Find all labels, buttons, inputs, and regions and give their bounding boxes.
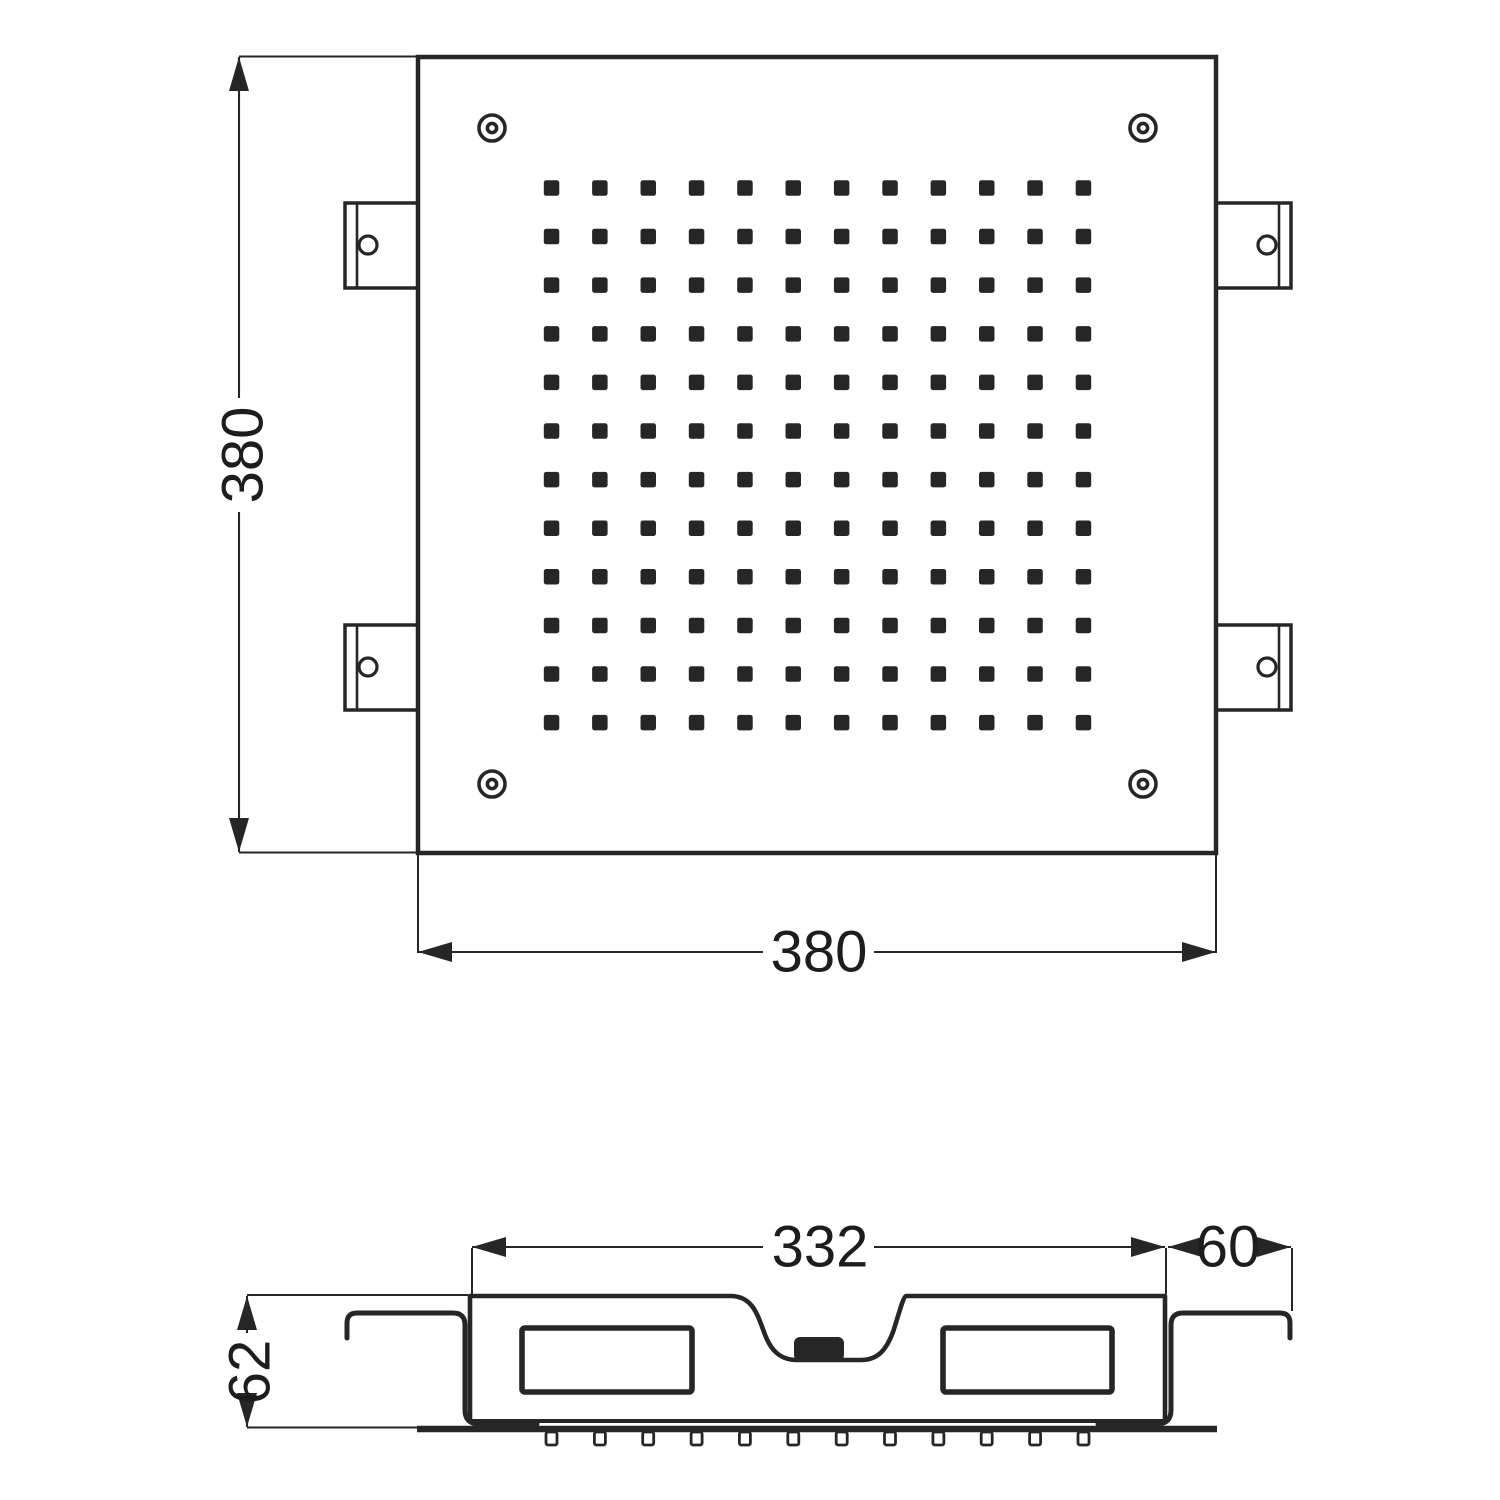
arrow-right-icon (1182, 942, 1216, 962)
nozzle-hole (931, 521, 947, 537)
side-nozzle-row (546, 1432, 1089, 1445)
nozzle-hole (544, 229, 560, 245)
nozzle-hole (544, 277, 560, 293)
nozzle-hole (689, 229, 705, 245)
nozzle-hole (1027, 277, 1043, 293)
mounting-tab-left-bottom (345, 625, 418, 710)
nozzle-hole (1027, 666, 1043, 682)
nozzle-hole (737, 666, 753, 682)
nozzle-hole (592, 277, 608, 293)
nozzle-hole (592, 521, 608, 537)
side-nozzle-tip (1030, 1432, 1041, 1445)
dim-label-width-380: 380 (771, 920, 868, 985)
corner-screw-bottom-right (1130, 771, 1156, 797)
nozzle-hole (834, 375, 850, 391)
nozzle-hole (882, 472, 898, 488)
nozzle-hole (834, 569, 850, 585)
nozzle-hole (882, 569, 898, 585)
nozzle-hole (641, 326, 657, 342)
nozzle-hole (641, 423, 657, 439)
nozzle-hole (544, 666, 560, 682)
nozzle-hole (689, 666, 705, 682)
nozzle-hole (979, 229, 995, 245)
side-nozzle-tip (1078, 1432, 1089, 1445)
nozzle-hole (641, 375, 657, 391)
nozzle-hole (641, 521, 657, 537)
nozzle-hole (737, 521, 753, 537)
technical-drawing-page: 380 380 (0, 0, 1500, 1500)
nozzle-hole (544, 472, 560, 488)
side-nozzle-tip (739, 1432, 750, 1445)
nozzle-hole (737, 229, 753, 245)
nozzle-hole (882, 277, 898, 293)
nozzle-hole (1076, 666, 1092, 682)
nozzle-hole (737, 180, 753, 196)
nozzle-hole (1027, 618, 1043, 634)
nozzle-hole (641, 666, 657, 682)
nozzle-hole (834, 229, 850, 245)
nozzle-hole (1027, 326, 1043, 342)
nozzle-hole (979, 326, 995, 342)
nozzle-hole (882, 326, 898, 342)
nozzle-hole (592, 180, 608, 196)
nozzle-hole (689, 277, 705, 293)
arrow-down-icon (229, 818, 249, 852)
dim-label-body-332: 332 (772, 1215, 869, 1280)
nozzle-hole (931, 569, 947, 585)
nozzle-hole (786, 326, 802, 342)
nozzle-hole (689, 375, 705, 391)
top-view (345, 57, 1291, 853)
side-nozzle-tip (885, 1432, 896, 1445)
shower-head-technical-drawing: 380 380 (0, 0, 1500, 1500)
nozzle-hole (979, 375, 995, 391)
corner-screw-top-right (1130, 115, 1156, 141)
nozzle-hole (592, 375, 608, 391)
dimension-body-332: 332 (472, 1215, 1166, 1295)
nozzle-hole (737, 715, 753, 731)
nozzle-hole (786, 423, 802, 439)
nozzle-hole (592, 472, 608, 488)
nozzle-hole (737, 569, 753, 585)
nozzle-hole (544, 375, 560, 391)
nozzle-hole (1027, 375, 1043, 391)
nozzle-hole (641, 229, 657, 245)
nozzle-hole (786, 618, 802, 634)
nozzle-hole (641, 180, 657, 196)
side-nozzle-tip (643, 1432, 654, 1445)
nozzle-hole (544, 423, 560, 439)
nozzle-hole (931, 472, 947, 488)
nozzle-hole (641, 618, 657, 634)
nozzle-hole (641, 277, 657, 293)
nozzle-hole (979, 569, 995, 585)
side-nozzle-tip (933, 1432, 944, 1445)
water-inlet-connector (795, 1338, 843, 1360)
nozzle-hole (689, 521, 705, 537)
nozzle-hole (689, 423, 705, 439)
nozzle-hole (1076, 229, 1092, 245)
arrow-right-icon (1257, 1237, 1291, 1257)
nozzle-hole (882, 180, 898, 196)
dim-label-tab-60: 60 (1196, 1215, 1261, 1280)
nozzle-hole (737, 472, 753, 488)
corner-screw-bottom-left (479, 771, 505, 797)
nozzle-hole (641, 715, 657, 731)
side-nozzle-tip (788, 1432, 799, 1445)
nozzle-hole (1027, 715, 1043, 731)
dim-label-height-380: 380 (211, 407, 276, 504)
nozzle-hole (979, 521, 995, 537)
nozzle-hole (544, 715, 560, 731)
arrow-right-icon (1131, 1237, 1165, 1257)
side-nozzle-tip (981, 1432, 992, 1445)
nozzle-hole (931, 423, 947, 439)
nozzle-hole (786, 277, 802, 293)
nozzle-hole (1076, 569, 1092, 585)
nozzle-hole (786, 715, 802, 731)
nozzle-hole (979, 277, 995, 293)
nozzle-hole (1076, 277, 1092, 293)
nozzle-hole (1027, 180, 1043, 196)
nozzle-hole (544, 326, 560, 342)
nozzle-hole (931, 375, 947, 391)
nozzle-hole (834, 277, 850, 293)
nozzle-hole (544, 521, 560, 537)
nozzle-hole (737, 618, 753, 634)
dimension-width-380: 380 (418, 853, 1216, 985)
nozzle-hole (931, 229, 947, 245)
nozzle-hole (931, 666, 947, 682)
nozzle-hole (1076, 521, 1092, 537)
nozzle-hole (786, 472, 802, 488)
nozzle-hole (834, 180, 850, 196)
nozzle-hole (1076, 375, 1092, 391)
nozzle-hole (931, 326, 947, 342)
side-nozzle-tip (836, 1432, 847, 1445)
nozzle-hole (1076, 180, 1092, 196)
nozzle-hole (689, 715, 705, 731)
nozzle-hole (592, 666, 608, 682)
nozzle-hole (834, 326, 850, 342)
nozzle-hole (882, 423, 898, 439)
arrow-up-icon (229, 57, 249, 91)
nozzle-hole (834, 666, 850, 682)
nozzle-hole (689, 326, 705, 342)
nozzle-hole (592, 326, 608, 342)
mounting-tab-right-top (1216, 203, 1291, 288)
nozzle-hole (1076, 715, 1092, 731)
nozzle-hole (1076, 618, 1092, 634)
nozzle-hole (882, 715, 898, 731)
tab-hole (1258, 658, 1276, 676)
nozzle-hole (1027, 229, 1043, 245)
nozzle-hole (979, 423, 995, 439)
nozzle-hole (544, 569, 560, 585)
nozzle-hole (592, 715, 608, 731)
nozzle-hole (882, 229, 898, 245)
nozzle-hole (1027, 521, 1043, 537)
nozzle-hole (1076, 472, 1092, 488)
nozzle-hole (979, 666, 995, 682)
nozzle-hole (931, 715, 947, 731)
nozzle-hole (931, 277, 947, 293)
nozzle-hole (979, 180, 995, 196)
nozzle-hole (592, 618, 608, 634)
internal-slot-left (522, 1328, 692, 1392)
nozzle-hole (737, 423, 753, 439)
nozzle-hole (1076, 423, 1092, 439)
nozzle-hole (592, 569, 608, 585)
nozzle-hole (544, 180, 560, 196)
nozzle-hole (931, 618, 947, 634)
nozzle-hole (834, 423, 850, 439)
face-plate (418, 57, 1216, 853)
mounting-tab-right-bottom (1216, 625, 1291, 710)
internal-slot-right (943, 1328, 1112, 1392)
nozzle-hole (882, 666, 898, 682)
nozzle-hole (786, 569, 802, 585)
nozzle-hole (641, 569, 657, 585)
dim-label-height-62: 62 (218, 1340, 283, 1405)
arrow-up-icon (237, 1296, 257, 1330)
nozzle-hole (689, 472, 705, 488)
nozzle-hole (592, 229, 608, 245)
corner-screw-top-left (479, 115, 505, 141)
nozzle-hole (689, 618, 705, 634)
nozzle-hole (979, 715, 995, 731)
nozzle-hole (882, 375, 898, 391)
side-view (347, 1296, 1290, 1445)
nozzle-hole (979, 618, 995, 634)
dimension-height-380: 380 (211, 57, 419, 853)
nozzle-hole (834, 521, 850, 537)
nozzle-hole (1027, 472, 1043, 488)
nozzle-hole (737, 375, 753, 391)
nozzle-hole (786, 180, 802, 196)
nozzle-hole (786, 375, 802, 391)
nozzle-hole (1027, 569, 1043, 585)
side-nozzle-tip (594, 1432, 605, 1445)
tab-hole (1258, 236, 1276, 254)
side-nozzle-tip (691, 1432, 702, 1445)
nozzle-hole (544, 618, 560, 634)
nozzle-hole (882, 618, 898, 634)
nozzle-hole (641, 472, 657, 488)
nozzle-hole (931, 180, 947, 196)
nozzle-hole (786, 521, 802, 537)
nozzle-hole (786, 666, 802, 682)
nozzle-hole (834, 715, 850, 731)
nozzle-hole (1027, 423, 1043, 439)
nozzle-hole (1076, 326, 1092, 342)
mounting-tab-left-top (345, 203, 418, 288)
nozzle-hole (979, 472, 995, 488)
nozzle-hole (689, 180, 705, 196)
side-nozzle-tip (546, 1432, 557, 1445)
arrow-left-icon (472, 1237, 506, 1257)
tab-hole (359, 236, 377, 254)
nozzle-hole (834, 472, 850, 488)
nozzle-hole (786, 229, 802, 245)
nozzle-hole (737, 326, 753, 342)
nozzle-hole (834, 618, 850, 634)
arrow-left-icon (418, 942, 452, 962)
nozzle-hole (737, 277, 753, 293)
nozzle-hole (592, 423, 608, 439)
nozzle-hole (882, 521, 898, 537)
tab-hole (359, 658, 377, 676)
nozzle-hole (689, 569, 705, 585)
dimension-tab-60: 60 (1168, 1215, 1292, 1312)
